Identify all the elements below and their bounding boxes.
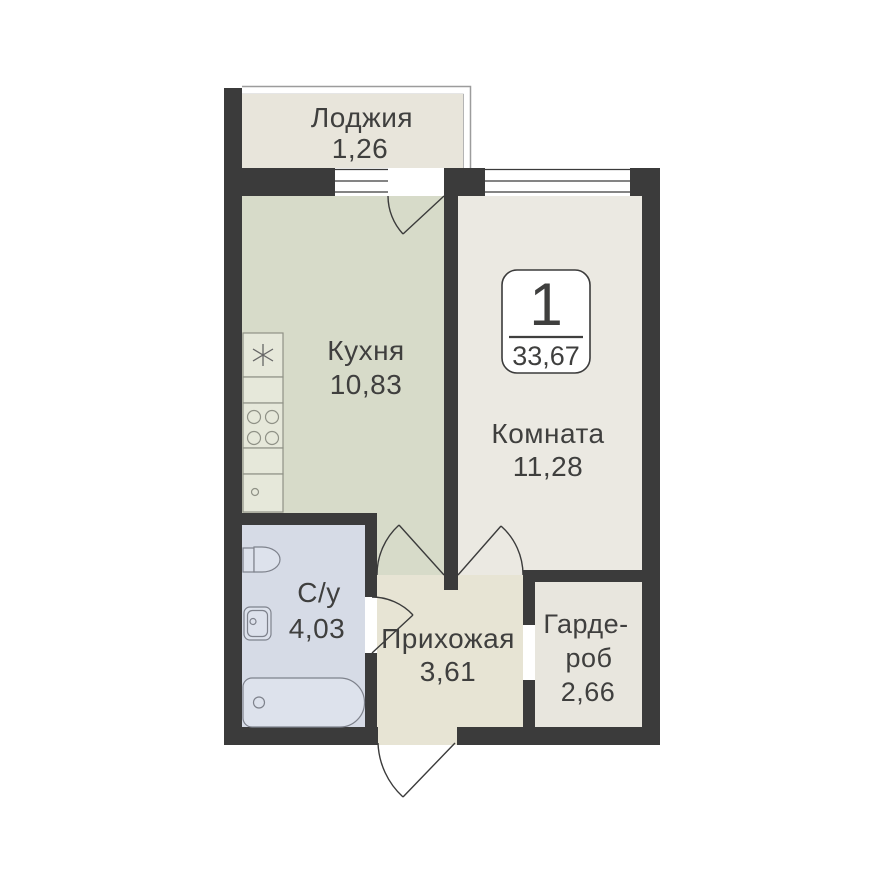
wardrobe-area-value: 2,66 [561, 677, 616, 707]
kitchen-label: Кухня [327, 335, 404, 366]
wall-wardrobe-top [523, 570, 642, 582]
wall-wardrobe-left-lower [523, 680, 535, 727]
loggia-label: Лоджия [311, 102, 413, 133]
kitchen-fixtures [243, 333, 283, 512]
badge-rooms-count: 1 [529, 271, 562, 338]
wardrobe-label-line2: роб [566, 643, 613, 673]
bathroom-label: С/у [297, 577, 341, 608]
wall-right [642, 168, 660, 745]
bathroom-area-value: 4,03 [289, 613, 346, 644]
kitchen-counter-upper [243, 377, 283, 403]
living-room-area-value: 11,28 [513, 451, 584, 482]
wall-bathroom-top [242, 513, 377, 525]
entrance-door-arc [378, 743, 455, 797]
entrance-opening [378, 727, 457, 745]
kitchen-counter-lower [243, 448, 283, 474]
kitchen-area-value: 10,83 [330, 369, 403, 400]
hallway-area-value: 3,61 [420, 656, 477, 687]
wardrobe-label-line1: Гарде- [543, 609, 628, 639]
wall-wardrobe-left-upper [523, 570, 535, 625]
floor-plan-svg: Лоджия 1,26 Кухня 10,83 Комната 11,28 С/… [0, 0, 886, 886]
loggia-area-value: 1,26 [332, 133, 389, 164]
badge-total-area: 33,67 [512, 341, 580, 371]
unit-info-badge: 1 33,67 [502, 270, 590, 373]
living-room-label: Комната [491, 418, 604, 449]
wall-kitchen-room [444, 196, 458, 590]
bathtub-icon [243, 678, 365, 727]
wall-left [224, 88, 242, 745]
living-room-area [458, 196, 642, 575]
wall-bathroom-right-lower [365, 653, 377, 727]
floor-plan-page: Лоджия 1,26 Кухня 10,83 Комната 11,28 С/… [0, 0, 886, 886]
wall-bathroom-right-upper [365, 513, 377, 597]
hallway-label: Прихожая [381, 623, 515, 654]
balcony-door-opening [388, 168, 444, 196]
toilet-tank-icon [243, 548, 254, 572]
kitchen-sink-icon [243, 474, 283, 512]
wall-top-right-corner [630, 168, 644, 196]
